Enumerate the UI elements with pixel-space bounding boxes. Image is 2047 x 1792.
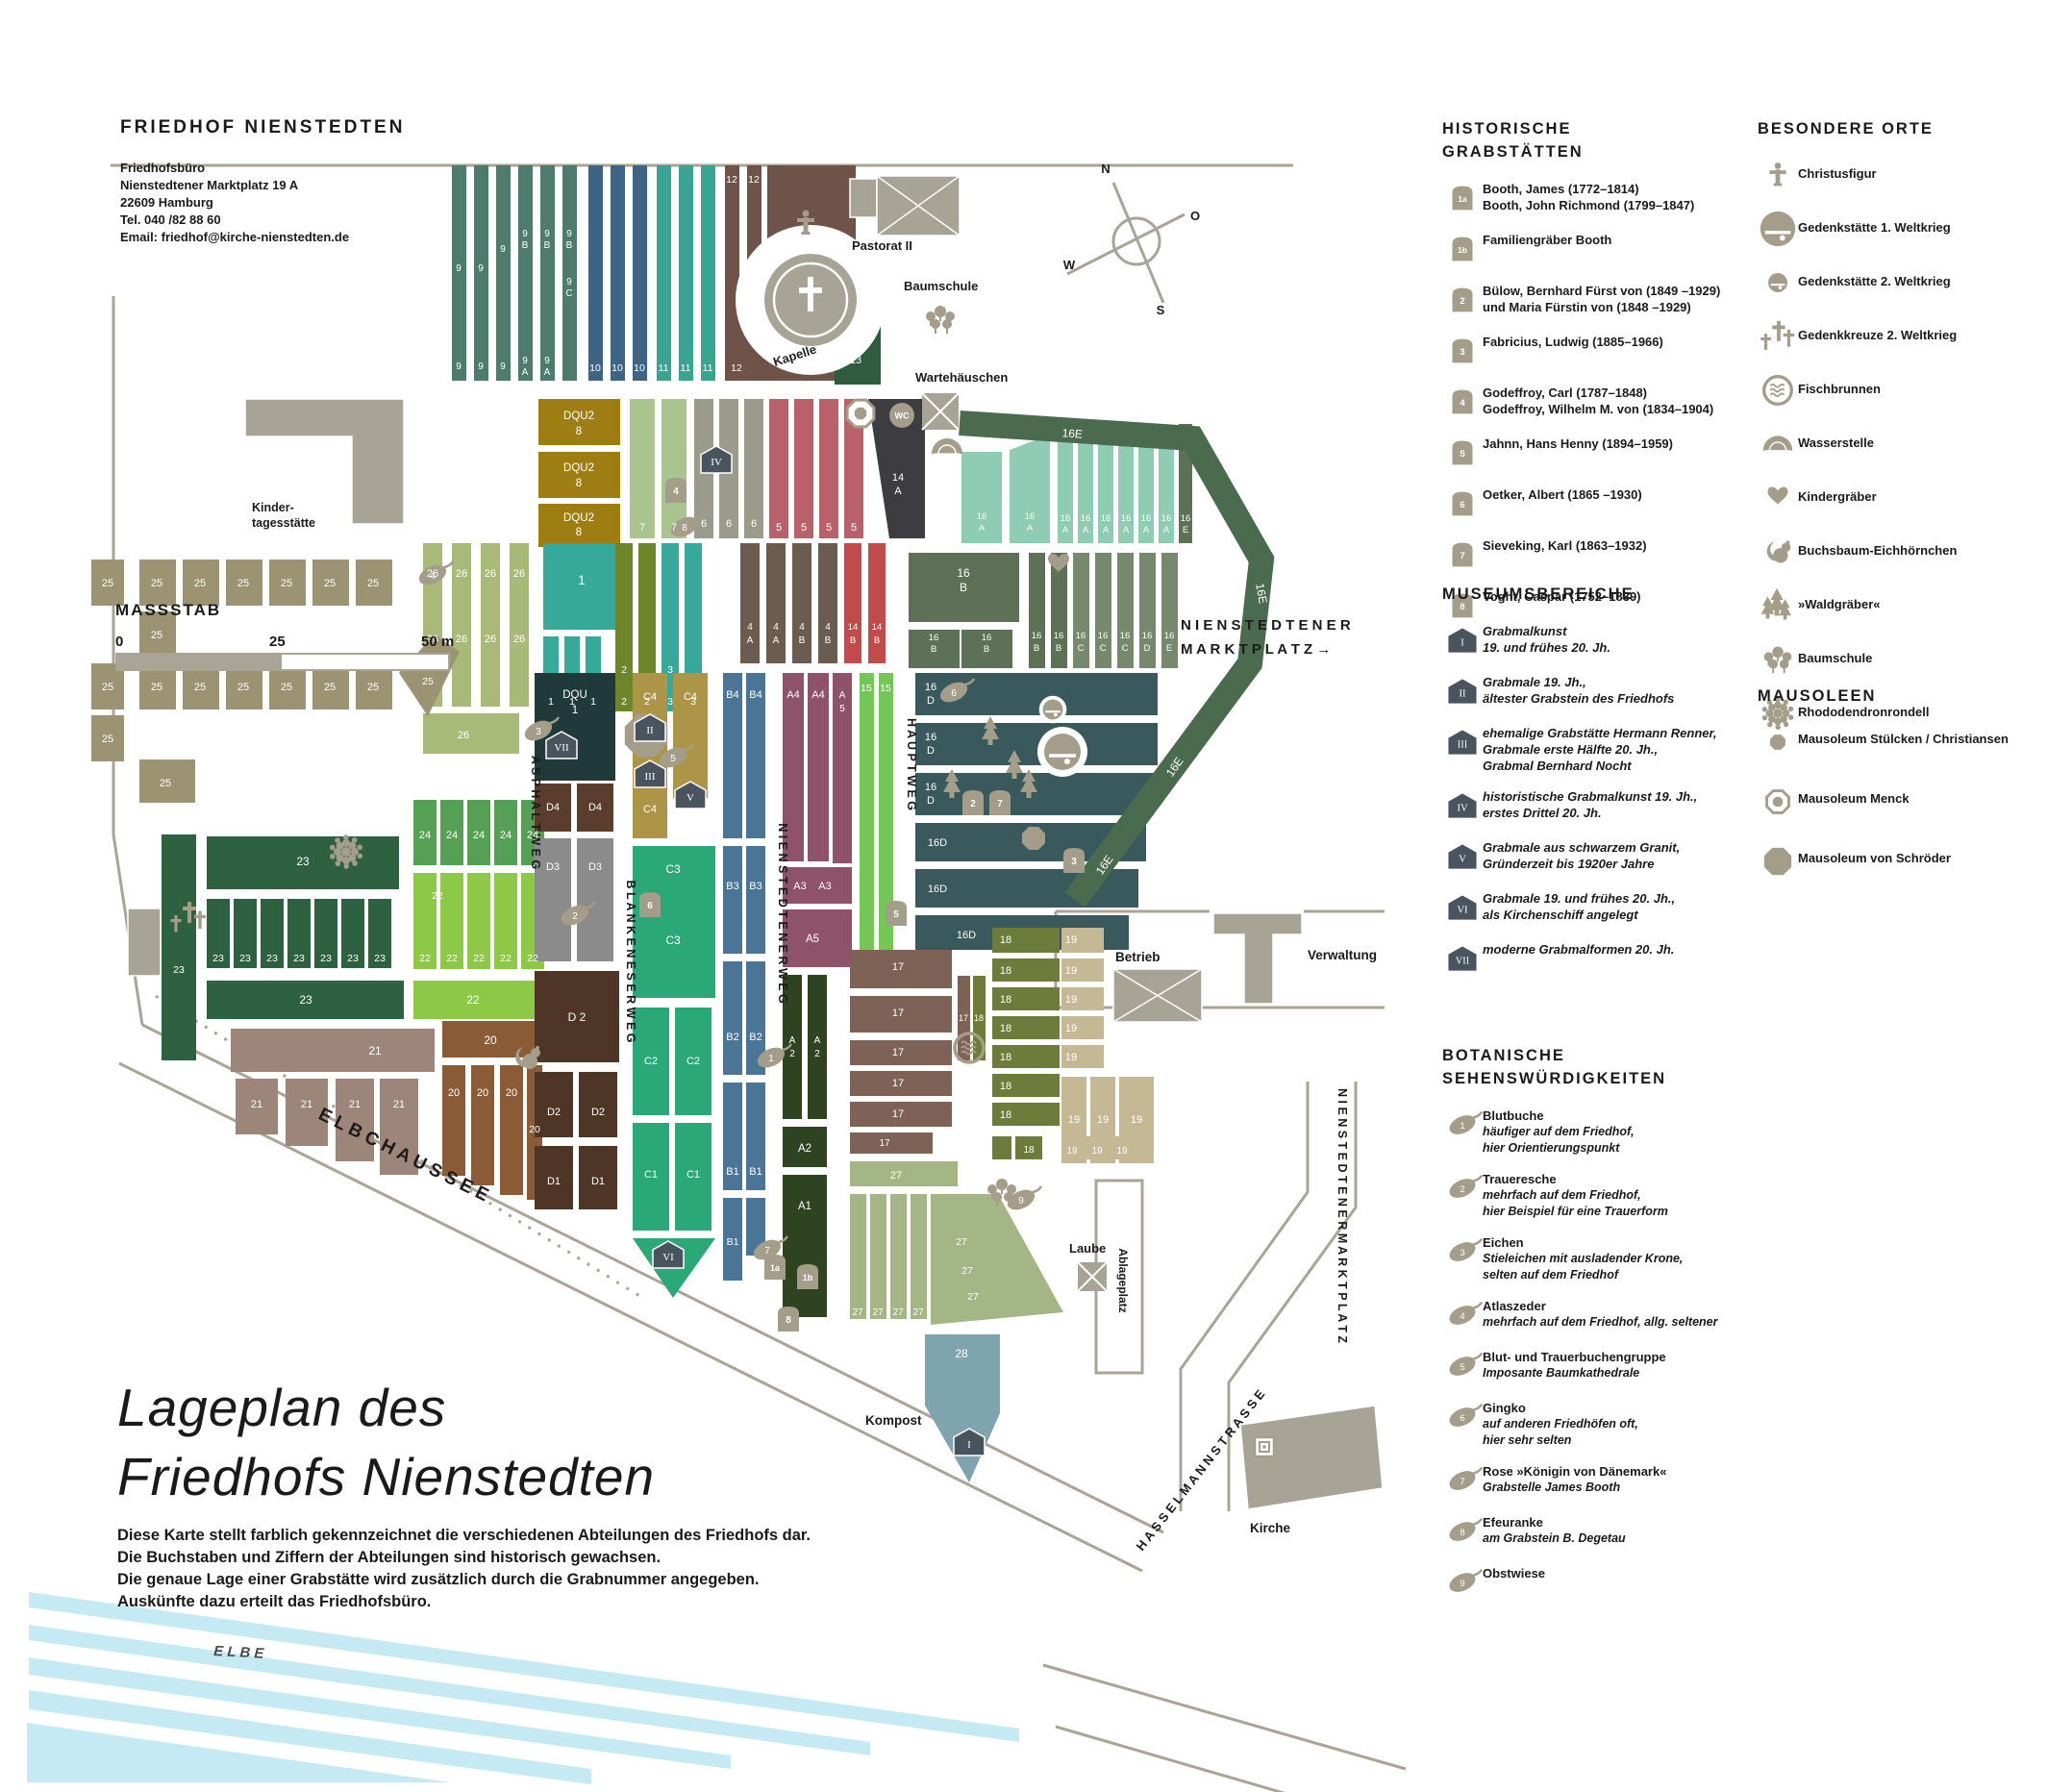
map-section [850,1132,933,1154]
map-label: 3 [667,696,673,708]
map-label: O [1190,209,1200,223]
kirchturm-icon [1255,1437,1274,1456]
map-section [890,1194,907,1319]
map-label: 8 [576,478,582,489]
legend-historische-grabstaetten: HISTORISCHE GRABSTÄTTEN 1aBooth, James (… [1442,117,1750,637]
grave-icon-cell: 7 [1442,535,1483,574]
legend-item-botanik-5: 5Blut- und TrauerbuchengruppeImposante B… [1442,1347,1760,1385]
map-label: C1 [686,1169,700,1181]
legend-item-grave-4: 4Godeffroy, Carl (1787–1848)Godeffroy, W… [1442,383,1750,421]
grave-icon: 1a [764,1255,786,1280]
svg-text:6: 6 [647,901,653,911]
leaf-icon-cell: 9 [1442,1563,1483,1602]
map-label: 4 [799,622,805,633]
map-label: 10 [634,362,645,374]
legend-item-text: Atlaszedermehrfach auf dem Friedhof, all… [1483,1296,1718,1331]
legend-item-text: Mausoleum Stülcken / Christiansen [1798,723,2009,747]
address-line: Email: friedhof@kirche-nienstedten.de [120,229,524,246]
map-label: 10 [612,362,623,374]
grave-icon: 7 [1442,535,1483,574]
map-section [535,1072,573,1137]
octring-icon [847,400,874,427]
map-label: 24 [527,830,538,841]
map-label: A [1103,525,1110,535]
legend-item-museum-V: VGrabmale aus schwarzem Granit,Gründerze… [1442,837,1760,876]
botanik-name: Blut- und Trauerbuchengruppe [1483,1349,1666,1365]
map-section [538,504,620,547]
map-label: 18 [974,1013,984,1023]
map-label: 5 [851,522,857,534]
map-label: A [1062,525,1069,535]
waterhalf-icon [932,438,962,454]
legend-item-text: Jahnn, Hans Henny (1894–1959) [1483,434,1673,452]
legend-item-museum-I: IGrabmalkunst19. und frühes 20. Jh. [1442,621,1760,660]
legend-line: Grabmale aus schwarzem Granit, [1483,839,1680,856]
map-label: B [1056,643,1061,654]
legend-item-text: Kindergräber [1798,479,1877,505]
grave-icon-cell: 5 [1442,434,1483,472]
grave-icon: 1b [1442,230,1483,268]
botanik-sub-line: mehrfach auf dem Friedhof, allg. seltene… [1483,1314,1718,1331]
svg-text:3: 3 [1460,347,1464,358]
description-line: Die Buchstaben und Ziffern der Abteilung… [117,1547,848,1569]
map-label: 25 [281,578,292,589]
museum-icon: V [1442,837,1483,876]
legend-item-museum-II: IIGrabmale 19. Jh.,ältester Grabstein de… [1442,672,1760,710]
museum-icon-cell: I [1442,621,1483,660]
legend-item-oct-s: Mausoleum Stülcken / Christiansen [1758,723,2046,761]
map-label: 2 [621,696,627,708]
ort-icon-cell [1758,533,1798,571]
legend-item-grave-3: 3Fabricius, Ludwig (1885–1966) [1442,332,1750,370]
grave-icon: 1b [797,1264,818,1289]
museum-icon-cell: V [1442,837,1483,876]
map-section [540,165,555,381]
svg-text:VII: VII [1456,957,1470,967]
map-label: 27 [912,1307,924,1318]
legend-item-text: Mausoleum Menck [1798,783,1910,807]
mausoleum-icon-cell [1758,783,1798,821]
map-label: 16 [1032,631,1042,641]
map-label: DQU2 [563,411,594,422]
map-label: N I E N S T E D T E N E R M A R K T P L … [1336,1088,1349,1343]
grave-icon: 4 [1442,383,1483,421]
svg-text:1b: 1b [803,1273,813,1282]
legend-line: Booth, James (1772–1814) [1483,181,1694,197]
map-label: 9 [500,361,506,372]
legend-line: ältester Grabstein des Friedhofs [1483,690,1674,707]
botanik-name: Blutbuche [1483,1108,1635,1124]
legend-item-grave-1b: 1bFamiliengräber Booth [1442,230,1750,268]
map-label: 25 [151,682,162,693]
map-label: 5 [839,704,845,714]
map-label: 16 [1141,513,1152,524]
svg-text:VI: VI [1457,906,1468,916]
map-label: 18 [1000,965,1011,977]
scale-title: MASSSTAB [115,601,462,620]
legend-line: 19. und frühes 20. Jh. [1483,639,1610,656]
svg-text:7: 7 [1460,1477,1464,1487]
map-label: A S P H A L T W E G [529,756,542,869]
map-label: 11 [703,362,713,374]
map-label: 25 [151,578,162,589]
map-label: 25 [102,682,113,693]
svg-text:WC: WC [895,411,910,421]
map-label: B [566,240,573,251]
map-label: C3 [665,933,681,947]
svg-text:I: I [967,1439,971,1451]
map-label: 19 [1065,1023,1077,1034]
map-label: 19 [1097,1114,1109,1126]
map-label: 23 [266,953,278,964]
map-label: 23 [296,855,310,868]
legend-line: Godeffroy, Carl (1787–1848) [1483,385,1713,401]
scale-block: MASSSTAB 0 25 50 m [115,601,462,671]
map-label: 2 [789,1049,795,1059]
map-section [992,1136,1011,1159]
map-label: 16D [957,930,976,941]
mausoleum-icon-cell [1758,723,1798,761]
map-label: A4 [786,689,799,701]
map-label: 25 [422,676,434,687]
map-label: 23 [293,953,305,964]
legend-botanische: BOTANISCHE SEHENSWÜRDIGKEITEN 1Blutbuche… [1442,1044,1760,1614]
map-label: 27 [967,1291,979,1303]
map-label: B4 [749,689,761,701]
map-label: 24 [419,830,431,841]
map-label: 6 [726,518,732,530]
map-label: B L A N K E N E S E R W E G [624,880,637,1042]
svg-text:8: 8 [682,523,687,534]
legend-line: Godeffroy, Wilhelm M. von (1834–1904) [1483,401,1713,417]
map-label: 7 [639,522,645,534]
map-label: 24 [446,830,458,841]
map-label: C4 [684,691,697,703]
grave-icon: 5 [1442,434,1483,472]
map-label: C [1078,643,1085,654]
botanik-sub-line: am Grabstein B. Degetau [1483,1531,1626,1547]
map-label: A2 [798,1143,811,1155]
map-label: S [1157,303,1165,317]
fountain-icon [1758,371,1798,410]
grave-icon: 4 [665,478,686,503]
map-label: B [799,635,806,646]
legend-item-text: Baumschule [1798,640,1872,666]
grave-icon: 2 [1442,281,1483,319]
legend-line: Mausoleum Menck [1798,790,1910,807]
map-label: C4 [643,691,657,703]
legend-line: historistische Grabmalkunst 19. Jh., [1483,788,1697,805]
map-section [783,1175,827,1317]
botanik-name: Atlaszeder [1483,1298,1718,1314]
map-section [850,1161,958,1186]
legend-item-text: ehemalige Grabstätte Hermann Renner,Grab… [1483,723,1716,774]
legend-item-text: Mausoleum von Schröder [1798,842,1951,866]
map-label: 1 [578,572,586,587]
legend-item-grave-2: 2Bülow, Bernhard Fürst von (1849 –1929)u… [1442,281,1750,319]
map-label: 17 [892,961,904,973]
legend-item-pines3: »Waldgräber« [1758,586,2046,625]
legend-line: Christusfigur [1798,165,1877,182]
map-label: A [1123,525,1130,535]
svg-text:5: 5 [1460,1362,1464,1373]
scale-ticks: 0 25 50 m [115,634,462,653]
legend-item-grave-1a: 1aBooth, James (1772–1814)Booth, John Ri… [1442,179,1750,217]
map-label: 21 [251,1099,262,1110]
museum-icon: III [1442,723,1483,761]
oct-icon [1758,723,1798,761]
legend-line: Fischbrunnen [1798,381,1881,397]
map-label: 9 [544,229,550,239]
map-label: B1 [727,1236,739,1248]
map-label: B [960,581,967,594]
map-label: 14 [872,622,883,633]
botanik-sub-line: auf anderen Friedhöfen oft, [1483,1416,1638,1432]
leaf-icon: 6 [1442,1398,1483,1436]
svg-text:I: I [1460,638,1464,649]
street-path [1056,1727,1406,1792]
legend-mausoleen-title: MAUSOLEEN [1758,684,2046,708]
map-label: B [544,240,551,251]
map-label: 14 [892,472,904,484]
leaf-icon: 2 [1442,1169,1483,1207]
map-label: 17 [892,1047,904,1058]
map-label: 17 [879,1138,890,1149]
scale-bar [115,653,450,671]
map-label: 24 [473,830,485,841]
legend-line: Grabmal Bernhard Nocht [1483,758,1716,774]
leaf-icon: 8 [1442,1512,1483,1551]
map-label: 9 [456,361,462,372]
legend-item-text: Blut- und TrauerbuchengruppeImposante Ba… [1483,1347,1666,1381]
map-section [538,452,620,498]
map-label: 2 [621,664,627,676]
legend-item-text: Grabmale 19. Jh.,ältester Grabstein des … [1483,672,1674,707]
grave-icon: 2 [962,790,984,815]
museum-icon: VII [1442,939,1483,978]
map-label: 9 [566,277,572,287]
map-label: A [773,635,780,646]
legend-item-text: Oetker, Albert (1865 –1930) [1483,485,1642,503]
map-label: 9 [456,263,462,274]
map-label: 20 [529,1124,540,1135]
legend-besondere-title: BESONDERE ORTE [1758,117,2046,140]
legend-item-text: »Waldgräber« [1798,586,1881,612]
map-label: A3 [793,881,806,892]
map-label: B4 [726,689,738,701]
map-label: 27 [890,1170,902,1182]
map-label: A [894,485,902,497]
map-section [808,975,827,1119]
map-label: A [1163,525,1170,535]
map-label: E [1166,643,1172,654]
map-section [870,1194,886,1319]
map-label: B [984,644,989,655]
legend-line: Oetker, Albert (1865 –1930) [1483,486,1642,503]
leaf-icon-cell: 7 [1442,1461,1483,1500]
map-label: 1 [590,696,596,708]
map-label: A4 [811,689,824,701]
map-label: 23 [374,953,386,964]
map-label: 12 [726,174,737,186]
map-label: 26 [513,634,525,645]
map-section [808,673,829,861]
street-path [1067,183,1185,303]
legend-item-christus: Christusfigur [1758,156,2046,194]
svg-text:5: 5 [893,909,899,920]
ort-icon-cell [1758,263,1798,302]
street-path [1043,1665,1406,1769]
map-label: 21 [393,1099,405,1110]
svg-text:2: 2 [572,911,578,922]
map-label: 18 [1000,1052,1011,1063]
map-label: 16D [928,884,947,895]
map-label: 22 [432,890,443,902]
map-label: 5 [826,522,832,534]
map-label: 9 [478,361,484,372]
svg-text:7: 7 [1460,551,1464,561]
map-label: 16 [925,782,936,793]
legend-item-text: Trauereschemehrfach auf dem Friedhof,hie… [1483,1169,1668,1220]
map-label: A [979,523,986,534]
map-label: 26 [427,568,438,580]
leaf-icon-cell: 1 [1442,1106,1483,1144]
botanik-sub-line: Imposante Baumkathedrale [1483,1365,1666,1381]
map-label: D 2 [568,1010,587,1024]
botanik-sub-line: häufiger auf dem Friedhof, [1483,1124,1635,1140]
map-section [723,961,742,1075]
map-label: A5 [806,933,819,945]
scale-bar-empty [284,655,448,669]
map-label: 19 [1065,994,1077,1006]
map-label: 26 [485,634,496,645]
map-label: 5 [776,522,782,534]
legend-item-text: Blutbuchehäufiger auf dem Friedhof,hier … [1483,1106,1635,1157]
map-label: 23 [173,964,185,976]
map-label: 12 [731,362,742,374]
botanik-name: Gingko [1483,1400,1638,1416]
legend-item-text: Fischbrunnen [1798,371,1881,397]
map-label: 13 [850,355,861,366]
map-label: C [1100,643,1107,654]
map-section [819,399,838,538]
map-label: 22 [419,953,431,964]
leaf-icon: 9 [1442,1563,1483,1602]
map-label: D2 [591,1107,605,1118]
legend-item-grave-7: 7Sieveking, Karl (1863–1932) [1442,535,1750,574]
legend-item-crosses: Gedenkkreuze 2. Weltkrieg [1758,317,2046,356]
map-label: 16 [1120,631,1131,641]
legend-item-botanik-2: 2Trauereschemehrfach auf dem Friedhof,hi… [1442,1169,1760,1220]
legend-line: Baumschule [1798,650,1872,666]
map-label: N I E N S T E D T E N E R W E G [776,823,789,1004]
map-label: 16 [1142,631,1153,641]
svg-text:9: 9 [1018,1196,1024,1207]
legend-line: Familiengräber Booth [1483,232,1611,248]
svg-text:1a: 1a [1458,194,1467,204]
map-section [577,838,613,961]
legend-item-octring: Mausoleum Menck [1758,783,2046,821]
map-label: 17 [892,1108,904,1120]
map-label: 11 [659,362,669,374]
museum-icon-cell: VI [1442,888,1483,927]
map-label: D3 [546,861,560,873]
map-label: D2 [547,1107,561,1118]
legend-line: und Maria Fürstin von (1848 –1929) [1483,299,1720,315]
map-label: 19 [1091,1146,1103,1157]
svg-text:II: II [1460,689,1466,700]
legend-historische-title: HISTORISCHE GRABSTÄTTEN [1442,117,1750,163]
map-label: 23 [212,953,224,964]
legend-line: Gründerzeit bis 1920er Jahre [1483,856,1680,872]
map-label: 25 [281,682,292,693]
heart-icon [1758,479,1798,517]
map-description: Diese Karte stellt farblich gekennzeichn… [117,1525,848,1613]
ort-icon-cell [1758,640,1798,679]
map-label: 26 [485,568,496,580]
map-label: B [874,635,880,646]
map-label: 15 [861,683,872,694]
legend-line: Wasserstelle [1798,435,1874,451]
map-label: Kinder- [252,501,294,514]
botanik-sub-line: hier Orientierungspunkt [1483,1140,1635,1157]
trees-icon [1758,640,1798,679]
legend-line: Gedenkkreuze 2. Weltkrieg [1798,327,1957,343]
botanik-name: Efeuranke [1483,1514,1626,1531]
map-label: B1 [749,1166,761,1178]
map-label: D4 [546,802,560,813]
map-label: A [544,367,551,378]
map-label: 25 [102,734,113,745]
svg-text:1: 1 [1460,1121,1464,1132]
legend-item-text: Rose »Königin von Dänemark«Grabstelle Ja… [1483,1461,1666,1496]
map-label: 23 [299,993,312,1007]
svg-text:4: 4 [1460,398,1465,409]
map-label: 8 [576,426,582,437]
map-label: B2 [749,1032,761,1043]
map-label: 22 [446,953,458,964]
map-section [579,1072,617,1137]
museum-icon-cell: VII [1442,939,1483,978]
map-section [931,1194,1063,1325]
svg-text:8: 8 [1460,1528,1464,1538]
map-label: C [565,288,572,299]
map-label: 25 [160,778,171,789]
title-block: Lageplan des Friedhofs Nienstedten Diese… [117,1373,848,1613]
grave-icon-cell: 3 [1442,332,1483,370]
legend-item-oct-l: Mausoleum von Schröder [1758,842,2046,881]
map-label: 19 [1116,1146,1128,1157]
map-section [915,723,1158,765]
map-label: 26 [513,568,525,580]
map-label: 2 [814,1049,820,1059]
map-label: 16 [929,633,939,643]
map-label: 20 [506,1087,517,1099]
svg-text:6: 6 [1460,500,1464,510]
legend-line: Grabmalkunst [1483,623,1610,639]
address-line: Nienstedtener Marktplatz 19 A [120,177,524,194]
map-label: Baumschule [904,279,978,293]
legend-line: »Waldgräber« [1798,596,1881,612]
svg-text:2: 2 [970,799,976,809]
botanik-sub-line: Stieleichen mit ausladender Krone, [1483,1251,1683,1267]
botanik-sub-line: Grabstelle James Booth [1483,1480,1666,1496]
botanik-sub-line: hier sehr selten [1483,1432,1638,1449]
legend-item-text: Buchsbaum-Eichhörnchen [1798,533,1957,559]
legend-item-text: Wasserstelle [1798,425,1874,451]
legend-line: Mausoleum von Schröder [1798,850,1951,866]
map-section [471,1065,494,1185]
